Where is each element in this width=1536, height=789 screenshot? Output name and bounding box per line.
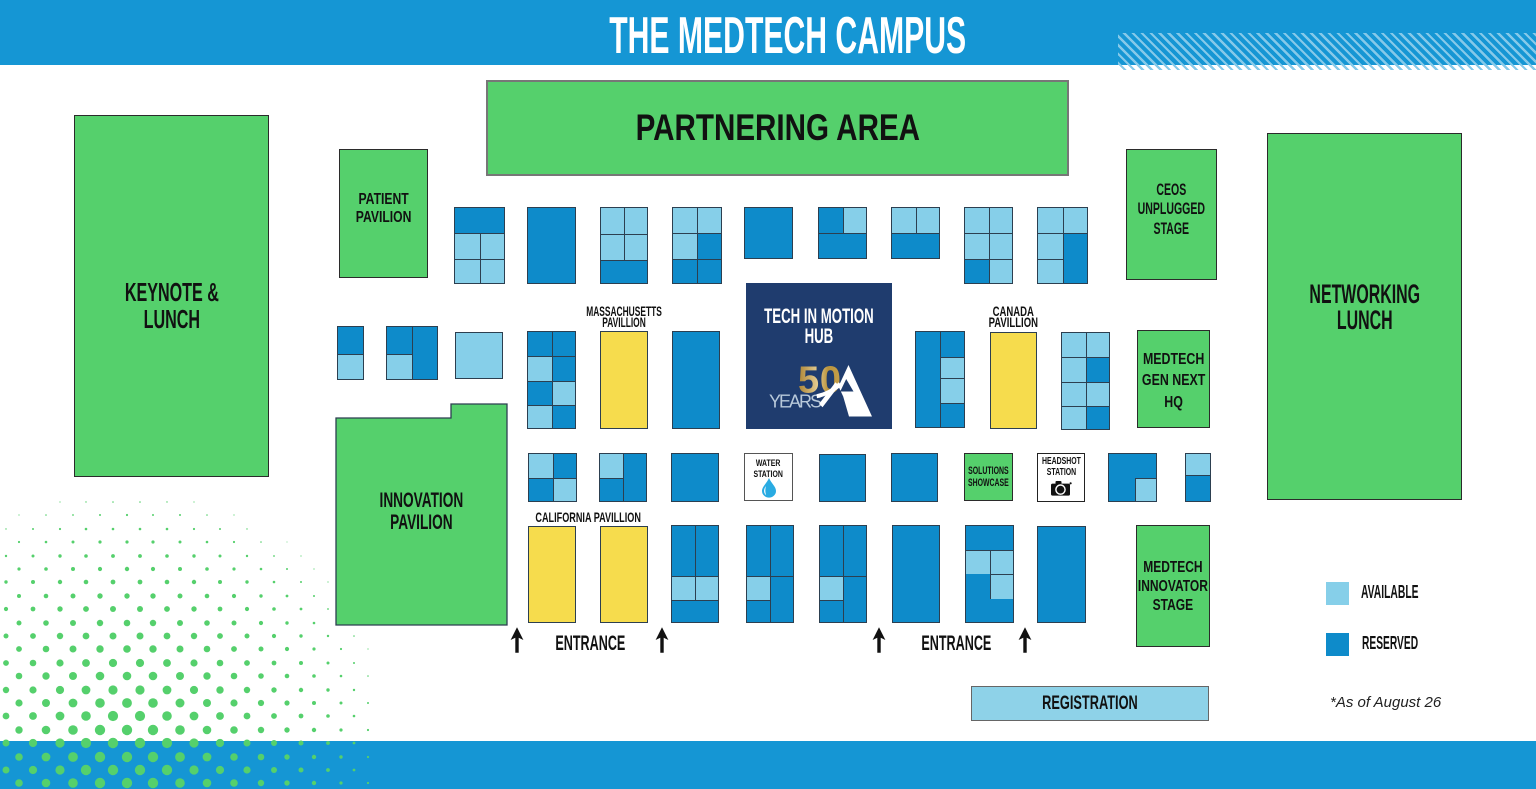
svg-text:YEARS: YEARS — [769, 391, 822, 411]
